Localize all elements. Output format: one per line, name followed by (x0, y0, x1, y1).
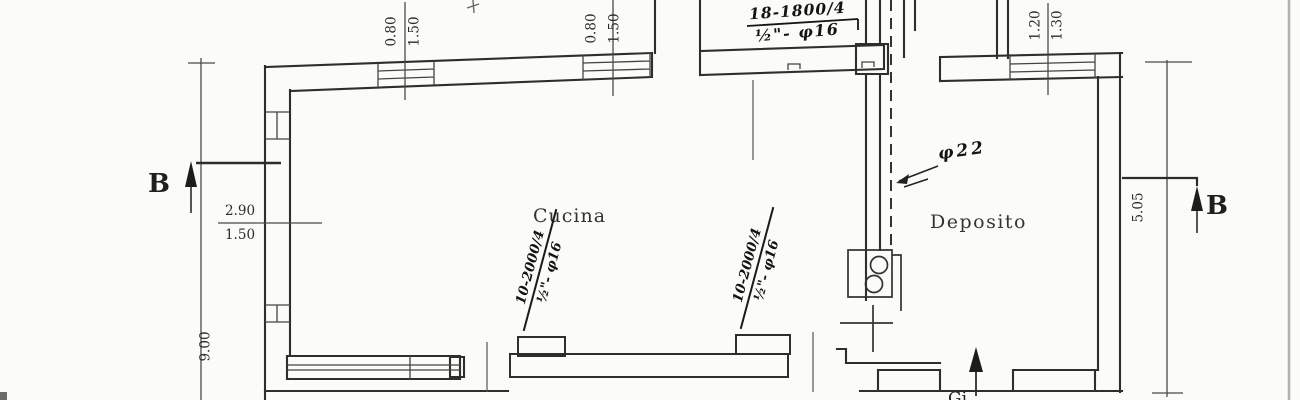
section-label-right: B (1206, 191, 1228, 221)
section-arrow-left (185, 161, 197, 187)
entry-arrow (969, 347, 983, 396)
top-wall-windows (378, 53, 874, 88)
dim-top-window-left-second: 1.50 (408, 9, 423, 55)
dim-top-window-mid-first: 0.80 (585, 6, 600, 52)
dimension-lines (188, 0, 1192, 400)
dim-left-opening-second: 1.50 (216, 227, 264, 243)
storage-top-window (1010, 54, 1095, 80)
kitchen-beams (510, 335, 790, 377)
bottom-wall-window-lines (287, 356, 460, 379)
pipe-section-circle (871, 257, 888, 274)
dim-right-side-length: 5.05 (1132, 185, 1147, 231)
clipped-text-remnant: Gi (948, 389, 967, 400)
pipe-chase (840, 250, 901, 352)
right-wall (1098, 53, 1120, 392)
floor-plan-linework (0, 0, 1300, 400)
dim-left-opening-first: 2.90 (216, 203, 264, 219)
scan-artifact (0, 392, 7, 400)
dim-top-window-left-first: 0.80 (385, 9, 400, 55)
pipe-leader-arrow (896, 166, 938, 187)
left-wall-windows (265, 112, 290, 322)
section-label-left: B (148, 169, 170, 199)
room-label-storage: Deposito (930, 211, 1027, 233)
section-arrow-right (1191, 186, 1203, 211)
stray-mark (467, 0, 479, 13)
divider-wall (856, 0, 915, 300)
dim-top-window-right-second: 1.30 (1051, 3, 1066, 49)
dim-top-window-right-first: 1.20 (1029, 3, 1044, 49)
floor-plan-scan: Cucina Deposito B B 0.80 1.50 0.80 1.50 … (0, 0, 1300, 400)
pipe-section-circle (866, 276, 883, 293)
dim-left-side-length: 9.00 (199, 324, 214, 370)
dim-top-window-mid-second: 1.50 (608, 6, 623, 52)
